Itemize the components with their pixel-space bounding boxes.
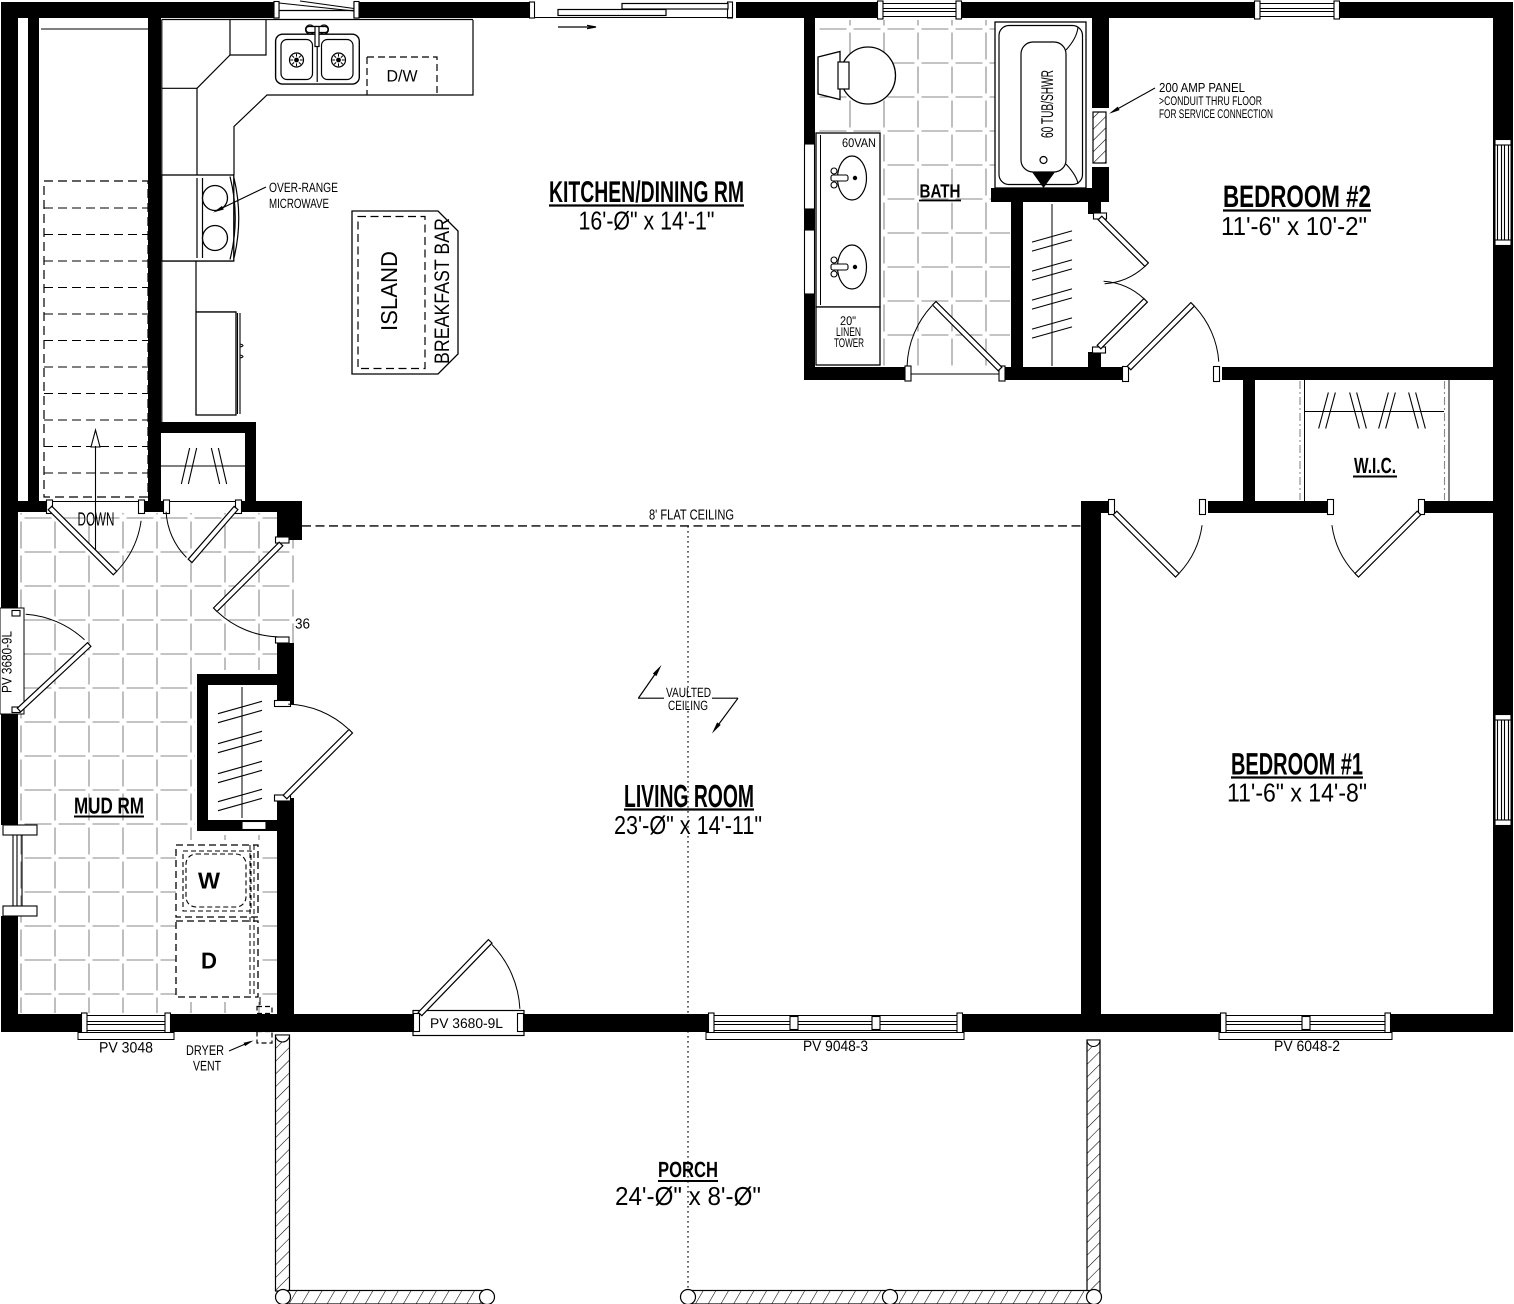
svg-text:60VAN: 60VAN xyxy=(842,136,876,150)
svg-text:MUD RM: MUD RM xyxy=(74,793,144,819)
svg-text:16'-Ø" x 14'-1": 16'-Ø" x 14'-1" xyxy=(579,206,715,236)
svg-text:D/W: D/W xyxy=(387,68,418,86)
svg-text:11'-6" x 10'-2": 11'-6" x 10'-2" xyxy=(1221,211,1367,241)
svg-text:OVER-RANGE: OVER-RANGE xyxy=(269,180,338,195)
svg-text:BATH: BATH xyxy=(920,182,961,203)
svg-text:DRYER: DRYER xyxy=(186,1042,224,1058)
svg-text:CEILING: CEILING xyxy=(668,698,708,713)
svg-text:60 TUB/SHWR: 60 TUB/SHWR xyxy=(1038,70,1057,138)
svg-text:24'-Ø" x 8'-Ø": 24'-Ø" x 8'-Ø" xyxy=(615,1181,761,1211)
svg-text:VENT: VENT xyxy=(193,1058,221,1074)
svg-text:FOR SERVICE CONNECTION: FOR SERVICE CONNECTION xyxy=(1159,107,1273,121)
svg-text:>CONDUIT THRU FLOOR: >CONDUIT THRU FLOOR xyxy=(1159,94,1262,108)
svg-text:PV 3680-9L: PV 3680-9L xyxy=(430,1015,503,1031)
svg-text:DOWN: DOWN xyxy=(78,510,115,531)
svg-text:PV 3048: PV 3048 xyxy=(99,1040,153,1057)
svg-text:W.I.C.: W.I.C. xyxy=(1354,453,1396,478)
svg-text:8' FLAT CEILING: 8' FLAT CEILING xyxy=(649,508,734,524)
svg-text:PV 3680-9L: PV 3680-9L xyxy=(0,631,15,693)
svg-text:36: 36 xyxy=(295,617,310,633)
svg-text:W: W xyxy=(198,868,220,894)
svg-text:D: D xyxy=(201,948,217,974)
svg-text:BEDROOM #2: BEDROOM #2 xyxy=(1223,179,1371,214)
svg-text:ISLAND: ISLAND xyxy=(376,251,402,331)
svg-text:200 AMP PANEL: 200 AMP PANEL xyxy=(1159,80,1245,95)
svg-text:TOWER: TOWER xyxy=(834,336,864,350)
svg-text:PV 6048-2: PV 6048-2 xyxy=(1274,1038,1340,1055)
svg-text:BEDROOM #1: BEDROOM #1 xyxy=(1231,747,1363,782)
svg-text:PORCH: PORCH xyxy=(658,1157,718,1182)
svg-text:11'-6" x 14'-8": 11'-6" x 14'-8" xyxy=(1227,778,1367,808)
svg-text:KITCHEN/DINING RM: KITCHEN/DINING RM xyxy=(549,176,744,209)
svg-text:PV 9048-3: PV 9048-3 xyxy=(803,1038,868,1055)
svg-text:MICROWAVE: MICROWAVE xyxy=(269,196,329,211)
svg-text:23'-Ø" x 14'-11": 23'-Ø" x 14'-11" xyxy=(614,810,762,840)
svg-text:BREAKFAST BAR: BREAKFAST BAR xyxy=(431,218,454,364)
